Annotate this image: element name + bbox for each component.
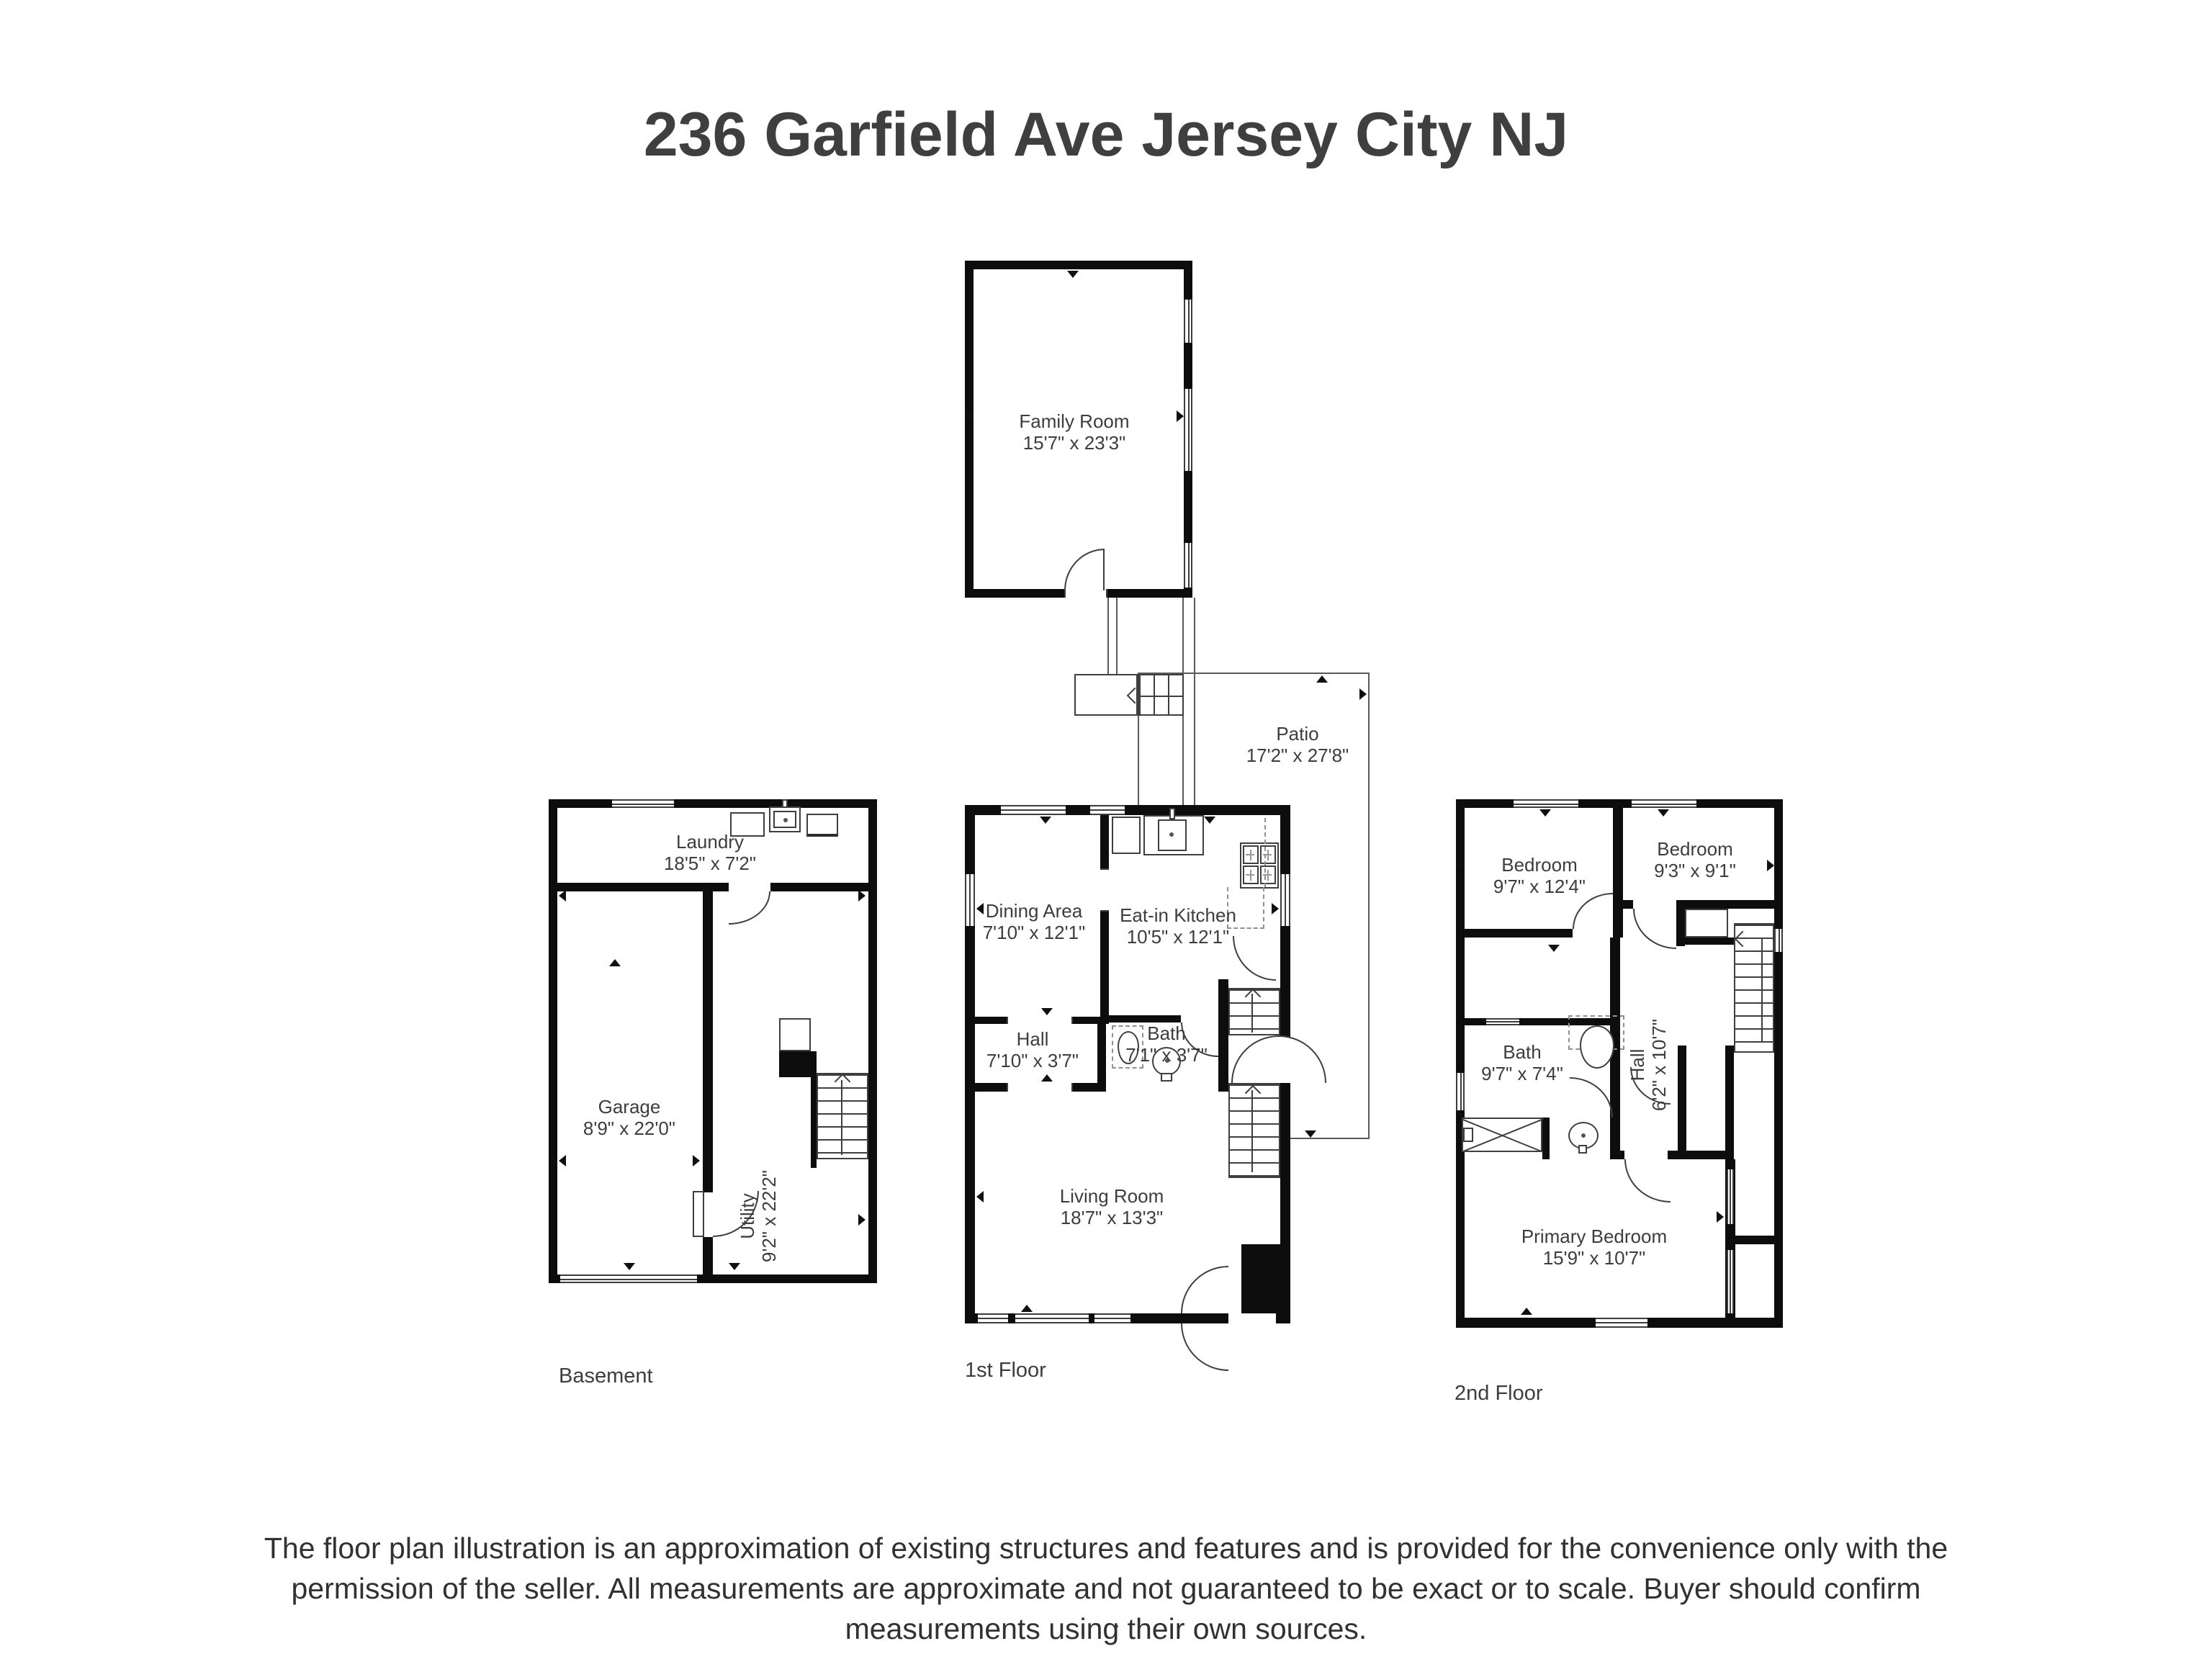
measure-arrow bbox=[559, 890, 566, 902]
bedroom-right-label: Bedroom 9'3" x 9'1" bbox=[1609, 840, 1781, 881]
tub-faucet bbox=[1463, 1128, 1473, 1142]
line bbox=[841, 1080, 842, 1155]
room-dims: 18'7" x 13'3" bbox=[997, 1208, 1227, 1228]
room-dims: 8'9" x 22'0" bbox=[529, 1118, 730, 1139]
door-gap bbox=[1573, 929, 1613, 938]
room-dims: 9'2" x 22'2" bbox=[759, 1137, 780, 1295]
door-arc bbox=[1573, 893, 1613, 929]
measure-arrow bbox=[609, 959, 621, 966]
door-arc bbox=[1633, 909, 1676, 949]
fixture bbox=[1243, 866, 1259, 884]
patio-label: Patio 17'2" x 27'8" bbox=[1197, 724, 1398, 766]
door-gap bbox=[1228, 1313, 1276, 1323]
bath-label: Bath 7'1" x 3'7" bbox=[1080, 1024, 1253, 1066]
measure-arrow bbox=[1717, 1211, 1724, 1223]
wall bbox=[965, 261, 1192, 269]
floor-plan-page: 236 Garfield Ave Jersey City NJ Family R… bbox=[0, 0, 2212, 1659]
door-gap bbox=[703, 1192, 713, 1237]
patio-steps bbox=[1138, 674, 1184, 716]
patio-line bbox=[1116, 598, 1118, 674]
door-gap bbox=[1633, 900, 1676, 909]
room-dims: 17'2" x 27'8" bbox=[1197, 745, 1398, 766]
wall bbox=[1725, 1046, 1734, 1159]
chimney bbox=[1241, 1244, 1282, 1313]
cased-opening bbox=[1007, 1083, 1073, 1092]
patio-line bbox=[1290, 1138, 1370, 1139]
wall bbox=[1542, 1118, 1550, 1159]
wall bbox=[549, 883, 877, 891]
window bbox=[612, 799, 674, 808]
faucet bbox=[1161, 1073, 1172, 1082]
fixture bbox=[1243, 845, 1259, 864]
disclaimer-text: The floor plan illustration is an approx… bbox=[249, 1529, 1963, 1650]
room-name: Bath bbox=[1436, 1043, 1609, 1064]
measure-arrow bbox=[1305, 1130, 1316, 1138]
page-title: 236 Garfield Ave Jersey City NJ bbox=[0, 101, 2212, 171]
hall2-label: Hall 6'2" x 10'7" bbox=[1628, 986, 1670, 1144]
wall bbox=[1685, 938, 1734, 945]
window bbox=[1774, 929, 1783, 952]
room-name: Family Room bbox=[959, 412, 1190, 433]
wall bbox=[549, 799, 877, 808]
room-name: Bedroom bbox=[1609, 840, 1781, 860]
line bbox=[1251, 1090, 1253, 1172]
window bbox=[1015, 1313, 1089, 1323]
measure-arrow bbox=[693, 1155, 700, 1166]
window bbox=[1184, 300, 1192, 343]
garage-door bbox=[560, 1274, 697, 1283]
window bbox=[1001, 805, 1066, 815]
closet bbox=[1685, 909, 1728, 938]
wall bbox=[1678, 1046, 1686, 1159]
garage-label: Garage 8'9" x 22'0" bbox=[529, 1097, 730, 1139]
living-room-label: Living Room 18'7" x 13'3" bbox=[997, 1187, 1227, 1228]
disclaimer-line: measurements using their own sources. bbox=[249, 1610, 1963, 1650]
room-dims: 9'7" x 7'4" bbox=[1436, 1064, 1609, 1084]
dryer bbox=[806, 814, 838, 837]
disclaimer-line: The floor plan illustration is an approx… bbox=[249, 1529, 1963, 1570]
door-gap bbox=[729, 883, 770, 891]
door-gap bbox=[1624, 1151, 1668, 1159]
measure-arrow bbox=[1548, 945, 1560, 952]
measure-arrow bbox=[858, 1214, 866, 1226]
room-name: Hall bbox=[1628, 986, 1649, 1144]
shelf bbox=[779, 1018, 811, 1051]
measure-arrow bbox=[1067, 271, 1079, 278]
fixture bbox=[1260, 866, 1276, 884]
room-name: Eat-in Kitchen bbox=[1077, 906, 1279, 927]
window bbox=[1727, 1250, 1734, 1313]
room-name: Garage bbox=[529, 1097, 730, 1118]
dot bbox=[1581, 1133, 1586, 1138]
family-room-label: Family Room 15'7" x 23'3" bbox=[959, 412, 1190, 454]
disclaimer-line: permission of the seller. All measuremen… bbox=[249, 1570, 1963, 1610]
measure-arrow bbox=[1658, 809, 1669, 817]
window bbox=[1514, 799, 1578, 808]
patio-line bbox=[1194, 598, 1195, 805]
line bbox=[1761, 938, 1763, 1041]
measure-arrow bbox=[1204, 817, 1215, 824]
cased-opening bbox=[1486, 1018, 1519, 1025]
second-floor-label: 2nd Floor bbox=[1455, 1382, 1543, 1406]
room-name: Patio bbox=[1197, 724, 1398, 745]
room-dims: 9'3" x 9'1" bbox=[1609, 860, 1781, 881]
dot bbox=[1169, 832, 1174, 837]
dot bbox=[783, 818, 788, 822]
door-arc bbox=[1181, 1266, 1228, 1313]
room-dims: 7'1" x 3'7" bbox=[1080, 1045, 1253, 1066]
room-dims: 15'7" x 23'3" bbox=[959, 433, 1190, 454]
measure-arrow bbox=[624, 1263, 635, 1270]
basement-floor-label: Basement bbox=[559, 1365, 653, 1388]
utility-label: Utility 9'2" x 22'2" bbox=[738, 1137, 780, 1295]
window bbox=[1280, 874, 1290, 926]
window bbox=[978, 1313, 1008, 1323]
patio-line bbox=[1107, 598, 1109, 674]
room-name: Living Room bbox=[997, 1187, 1227, 1208]
kitchen-label: Eat-in Kitchen 10'5" x 12'1" bbox=[1077, 906, 1279, 948]
window bbox=[1094, 1313, 1130, 1323]
measure-arrow bbox=[1539, 809, 1551, 817]
bath2-label: Bath 9'7" x 7'4" bbox=[1436, 1043, 1609, 1084]
measure-arrow bbox=[1040, 817, 1051, 824]
door-arc bbox=[1064, 549, 1105, 590]
fixture bbox=[1260, 845, 1276, 864]
wall bbox=[1725, 1236, 1783, 1244]
measure-arrow bbox=[1021, 1305, 1033, 1312]
room-name: Primary Bedroom bbox=[1479, 1227, 1709, 1248]
first-floor-label: 1st Floor bbox=[965, 1359, 1046, 1382]
room-dims: 18'5" x 7'2" bbox=[609, 853, 811, 874]
wall bbox=[1109, 1015, 1181, 1022]
measure-arrow bbox=[976, 1191, 984, 1202]
faucet bbox=[782, 799, 788, 808]
measure-arrow bbox=[1316, 675, 1328, 683]
measure-arrow bbox=[559, 1155, 566, 1166]
wall bbox=[779, 1051, 817, 1077]
door-arc bbox=[729, 891, 770, 925]
cased-opening bbox=[1007, 1017, 1073, 1024]
room-dims: 15'9" x 10'7" bbox=[1479, 1248, 1709, 1269]
line bbox=[1103, 549, 1105, 590]
laundry-label: Laundry 18'5" x 7'2" bbox=[609, 832, 811, 874]
wall bbox=[1676, 909, 1685, 946]
cabinet-dashed bbox=[1264, 818, 1266, 887]
measure-arrow bbox=[1521, 1308, 1532, 1315]
window bbox=[1184, 543, 1192, 588]
wall bbox=[1456, 799, 1783, 808]
window bbox=[1632, 799, 1696, 808]
room-dims: 6'2" x 10'7" bbox=[1649, 986, 1670, 1144]
wall bbox=[549, 799, 557, 1283]
faucet bbox=[1578, 1145, 1587, 1154]
patio-line bbox=[1138, 716, 1139, 805]
wall bbox=[868, 799, 877, 1283]
primary-bedroom-label: Primary Bedroom 15'9" x 10'7" bbox=[1479, 1227, 1709, 1269]
room-name: Utility bbox=[738, 1137, 759, 1295]
door-arc bbox=[1181, 1323, 1228, 1371]
door-leaf bbox=[693, 1191, 704, 1237]
door-arc bbox=[1624, 1159, 1671, 1202]
measure-arrow bbox=[1041, 1008, 1053, 1015]
footnote-dot: . bbox=[1115, 1610, 1123, 1630]
window bbox=[1727, 1169, 1734, 1224]
wall bbox=[811, 1077, 817, 1168]
room-dims: 10'5" x 12'1" bbox=[1077, 927, 1279, 948]
measure-arrow bbox=[1359, 688, 1367, 700]
window bbox=[1596, 1318, 1647, 1328]
measure-arrow bbox=[1041, 1074, 1053, 1082]
room-name: Laundry bbox=[609, 832, 811, 853]
measure-arrow bbox=[858, 890, 866, 902]
room-name: Bath bbox=[1080, 1024, 1253, 1045]
cabinet bbox=[1112, 817, 1141, 854]
window bbox=[1090, 805, 1125, 815]
faucet bbox=[1169, 808, 1175, 819]
